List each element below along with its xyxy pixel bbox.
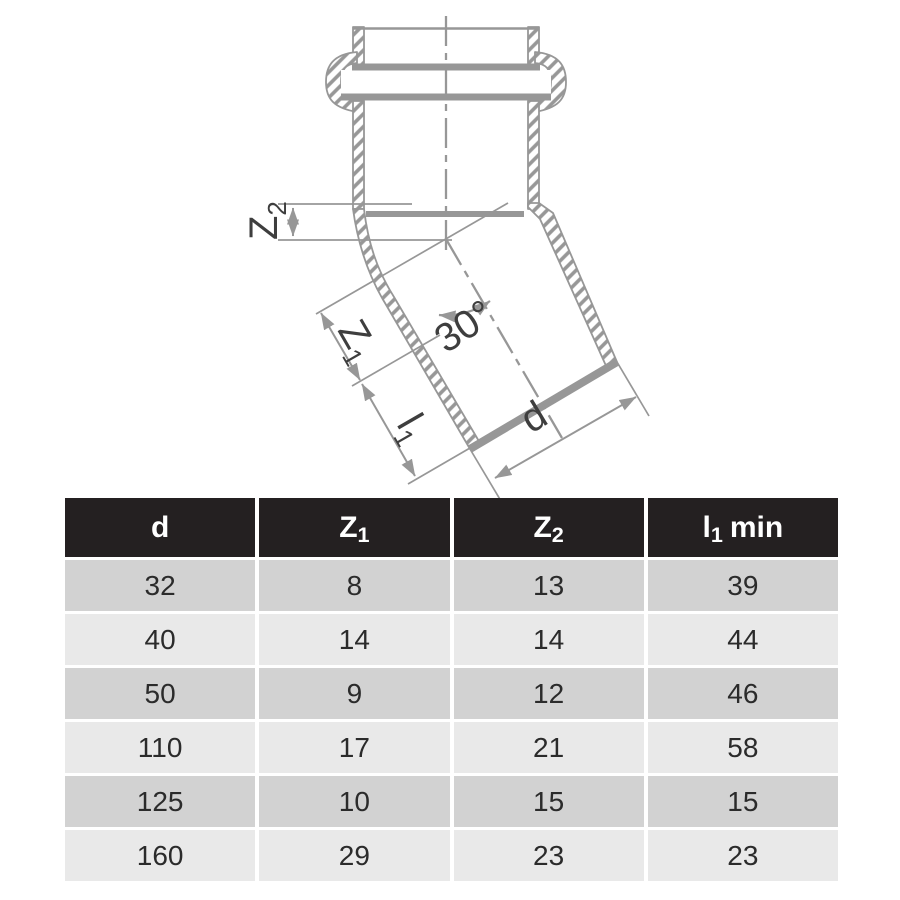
- cell-z2: 13: [454, 560, 644, 611]
- cell-l1min: 44: [648, 614, 838, 665]
- pipe-fitting-drawing: [326, 16, 617, 449]
- col-header-l1min: l1min: [648, 498, 838, 557]
- cell-z2: 14: [454, 614, 644, 665]
- cell-z1: 9: [259, 668, 449, 719]
- col-header-z1: Z1: [259, 498, 449, 557]
- cell-d: 32: [65, 560, 255, 611]
- cell-l1min: 39: [648, 560, 838, 611]
- col-header-z2: Z2: [454, 498, 644, 557]
- table-row: 40 14 14 44: [65, 614, 838, 665]
- dimensions-table: d Z1 Z2 l1min 32 8 13 39 40 14 14 44 50: [65, 498, 838, 881]
- l1-dimension: l1: [362, 384, 438, 476]
- d-dimension: d: [495, 393, 636, 478]
- z2-dimension: Z2: [242, 201, 293, 240]
- cell-d: 160: [65, 830, 255, 881]
- cell-d: 125: [65, 776, 255, 827]
- label-z1: Z1: [324, 313, 387, 372]
- cell-d: 50: [65, 668, 255, 719]
- label-l1: l1: [383, 407, 438, 452]
- cell-d: 40: [65, 614, 255, 665]
- z1-dimension: Z1: [321, 313, 387, 381]
- cell-z2: 12: [454, 668, 644, 719]
- table-header-row: d Z1 Z2 l1min: [65, 498, 838, 557]
- cell-z1: 17: [259, 722, 449, 773]
- page: Z2 Z1 l1 d: [0, 0, 900, 900]
- table-row: 32 8 13 39: [65, 560, 838, 611]
- cell-z2: 23: [454, 830, 644, 881]
- label-z2: Z2: [242, 201, 292, 240]
- cell-l1min: 58: [648, 722, 838, 773]
- cell-z1: 10: [259, 776, 449, 827]
- cell-z2: 21: [454, 722, 644, 773]
- cell-l1min: 23: [648, 830, 838, 881]
- label-angle: 30°: [427, 292, 502, 362]
- table-row: 110 17 21 58: [65, 722, 838, 773]
- table-row: 125 10 15 15: [65, 776, 838, 827]
- fitting-diagram: Z2 Z1 l1 d: [0, 0, 900, 498]
- table-row: 50 9 12 46: [65, 668, 838, 719]
- cell-l1min: 46: [648, 668, 838, 719]
- cell-z1: 8: [259, 560, 449, 611]
- table-row: 160 29 23 23: [65, 830, 838, 881]
- cell-z1: 29: [259, 830, 449, 881]
- cell-z1: 14: [259, 614, 449, 665]
- cell-d: 110: [65, 722, 255, 773]
- cell-z2: 15: [454, 776, 644, 827]
- cell-l1min: 15: [648, 776, 838, 827]
- angle-annotation: 30°: [427, 292, 502, 362]
- col-header-d: d: [65, 498, 255, 557]
